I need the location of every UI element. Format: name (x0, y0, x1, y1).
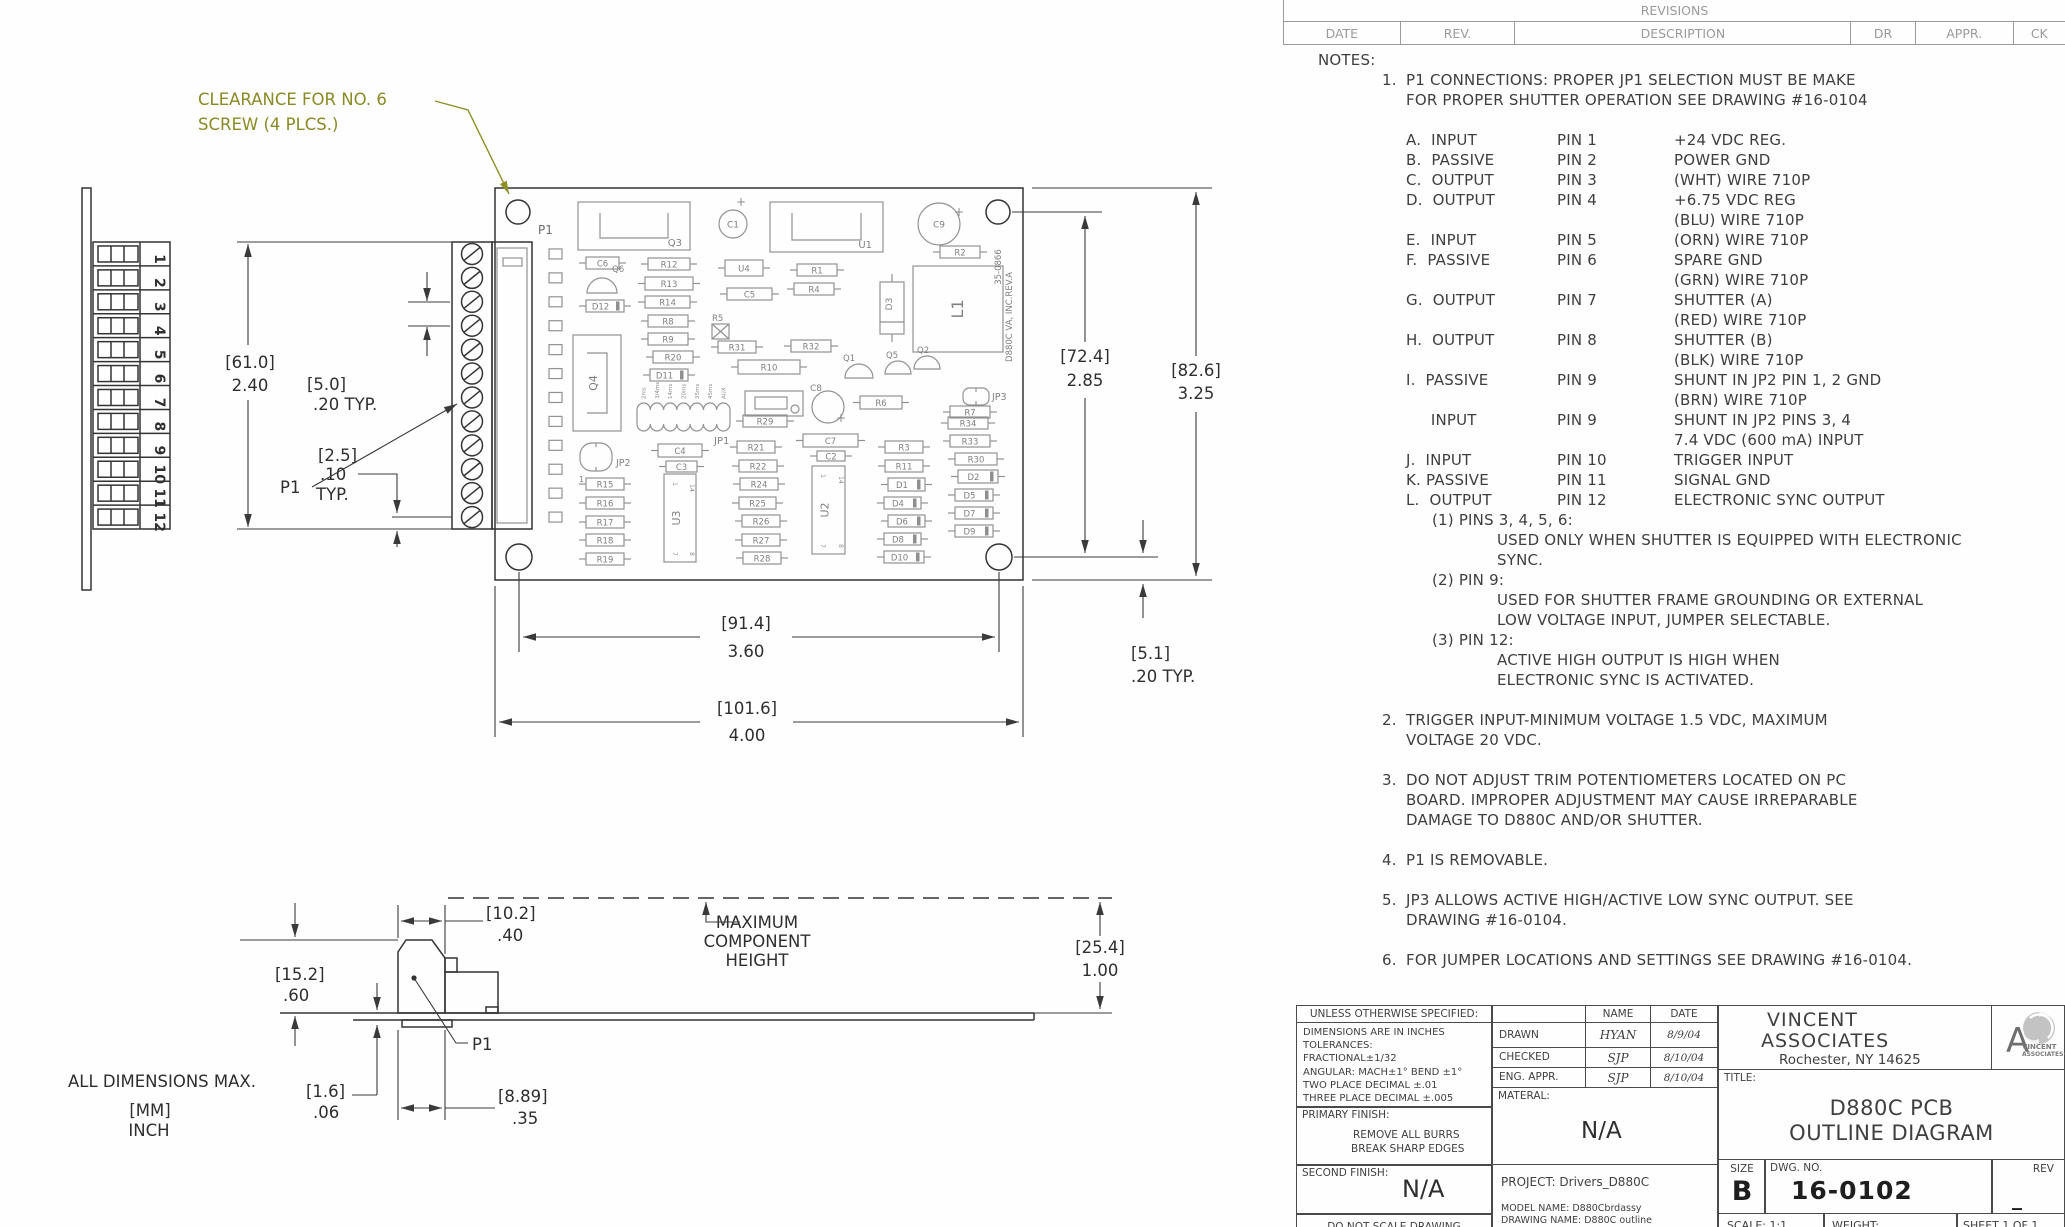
svg-text:Q6: Q6 (612, 265, 624, 275)
component-C7: C7 (803, 434, 858, 447)
svg-text:D4: D4 (892, 499, 904, 509)
terminal-number: 9 (151, 445, 167, 455)
material-cell: MATERAL: N/A (1492, 1087, 1718, 1165)
dim-61: [61.0] (225, 353, 275, 372)
terminal-cell (98, 389, 138, 405)
component-C1: C1+ (719, 195, 747, 238)
checked-date: 8/10/04 (1650, 1047, 1718, 1068)
mounting-hole (986, 544, 1012, 570)
pcb-top-view: Q3U1C1+C9+R2U4C5R1R4D3L1C6Q6D12R12R13R14… (452, 188, 1023, 580)
p1-pin-pad (549, 297, 562, 307)
svg-text:R6: R6 (875, 399, 886, 409)
p1-pin-pad (549, 440, 562, 450)
svg-text:R13: R13 (661, 280, 678, 290)
svg-text:1: 1 (819, 474, 826, 478)
dim-35: .35 (512, 1109, 538, 1128)
company-name-1: VINCENT (1767, 1009, 1858, 1031)
svg-text:Q2: Q2 (917, 346, 929, 356)
material-value: N/A (1581, 1118, 1622, 1144)
drawn-date: 8/9/04 (1650, 1022, 1718, 1048)
terminal-number: 7 (151, 398, 167, 408)
svg-text:C3: C3 (676, 463, 687, 473)
component-R22: R22 (739, 460, 777, 472)
title-cell: TITLE: D880C PCB OUTLINE DIAGRAM (1718, 1069, 2065, 1160)
component-R29: R29 (743, 415, 787, 427)
component-R14: R14 (645, 296, 690, 308)
dim-914: [91.4] (721, 614, 771, 633)
pin-row: (BLK) WIRE 710P (1406, 350, 2038, 370)
pin-row: G. OUTPUTPIN 7SHUTTER (A) (1406, 290, 2038, 310)
component-C2: C2 (817, 451, 845, 462)
svg-text:C6: C6 (597, 259, 608, 269)
clearance-callout: CLEARANCE FOR NO. 6 SCREW (4 PLCS.) (198, 90, 509, 194)
svg-text:L1: L1 (948, 299, 967, 318)
dim-60: .60 (283, 986, 309, 1005)
dim-06: .06 (313, 1103, 339, 1122)
terminal-cell (98, 485, 138, 501)
svg-text:8: 8 (688, 552, 695, 556)
component-R3: R3 (885, 441, 923, 453)
component-R25: R25 (739, 497, 776, 509)
sub-note-head: (3) PIN 12: (1432, 630, 2038, 650)
p1-label-side: P1 (472, 1035, 492, 1054)
do-not-scale-cell: DO NOT SCALE DRAWING (1296, 1213, 1492, 1227)
logo-text-1: VINCENT (2022, 1043, 2057, 1051)
pin-table: A. INPUTPIN 1+24 VDC REG.B. PASSIVEPIN 2… (1318, 130, 2038, 510)
pin-row: C. OUTPUTPIN 3(WHT) WIRE 710P (1406, 170, 2038, 190)
svg-text:7: 7 (819, 544, 826, 548)
svg-text:R15: R15 (597, 480, 614, 490)
p1-label-left: P1 (280, 478, 300, 497)
tolerance-line: THREE PLACE DECIMAL ±.005 (1303, 1092, 1491, 1105)
svg-text:R5: R5 (712, 314, 723, 324)
dim-102: [10.2] (486, 904, 536, 923)
svg-text:U4: U4 (738, 264, 750, 274)
component-R33: R33 (950, 435, 990, 447)
svg-text:+: + (836, 411, 846, 425)
sub-note-line: ACTIVE HIGH OUTPUT IS HIGH WHEN (1497, 650, 2038, 670)
pin-row: (BLU) WIRE 710P (1406, 210, 2038, 230)
drawing-title-2: OUTLINE DIAGRAM (1719, 1121, 2064, 1145)
svg-text:R22: R22 (750, 462, 767, 472)
pin-row: 7.4 VDC (600 mA) INPUT (1406, 430, 2038, 450)
mounting-hole (986, 200, 1010, 224)
pin-row: K. PASSIVEPIN 11SIGNAL GND (1406, 470, 2038, 490)
component-U1: U1 (770, 202, 883, 252)
jp1-tick-label: 20ms (682, 384, 688, 399)
p1-pin-pad (549, 321, 562, 331)
revisions-table: REVISIONS DATE REV. DESCRIPTION DR APPR.… (1283, 0, 2065, 45)
svg-text:8: 8 (837, 544, 844, 548)
note-item: 4.P1 IS REMOVABLE. (1318, 850, 2038, 870)
component-D7: D7 (955, 507, 993, 519)
dim-16: [1.6] (306, 1082, 345, 1101)
note-item: 6.FOR JUMPER LOCATIONS AND SETTINGS SEE … (1318, 950, 2038, 970)
sub-note-head: (1) PINS 3, 4, 5, 6: (1432, 510, 2038, 530)
svg-text:C8: C8 (810, 384, 822, 394)
all-dims-note: ALL DIMENSIONS MAX. (68, 1072, 256, 1091)
tolerance-line: TWO PLACE DECIMAL ±.01 (1303, 1079, 1491, 1092)
dim-325: 3.25 (1178, 384, 1215, 403)
svg-text:D12: D12 (592, 302, 609, 312)
terminal-cell (98, 413, 138, 429)
component-U4: U4 (725, 260, 763, 276)
component-D1: D1 (888, 478, 925, 491)
rev-col-ck: CK (2014, 22, 2065, 44)
dwg-no-cell: DWG. NO. 16-0102 (1764, 1159, 1993, 1214)
date-header: DATE (1650, 1005, 1718, 1023)
terminal-number: 12 (151, 512, 167, 531)
drawn-name: HYAN (1585, 1022, 1651, 1048)
notes-heading: NOTES: (1318, 50, 2038, 70)
svg-text:R28: R28 (754, 554, 771, 564)
svg-text:R29: R29 (757, 417, 774, 427)
component-D4: D4 (884, 497, 921, 509)
component-C8: C8+ (810, 384, 846, 425)
logo-text-2: ASSOCIATES® (2022, 1051, 2065, 1058)
note-item: 3.DO NOT ADJUST TRIM POTENTIOMETERS LOCA… (1318, 770, 2038, 830)
notes-section: NOTES: 1.P1 CONNECTIONS: PROPER JP1 SELE… (1318, 50, 2038, 970)
component-D11: D11 (650, 369, 688, 381)
terminal-cell (98, 294, 138, 310)
checked-label: CHECKED (1492, 1047, 1586, 1068)
svg-text:R17: R17 (597, 518, 614, 528)
svg-text:D2: D2 (968, 473, 980, 483)
component-D6: D6 (888, 515, 925, 527)
component-R30: R30 (955, 453, 997, 465)
pin-row: (RED) WIRE 710P (1406, 310, 2038, 330)
p1-pin-pad (549, 345, 562, 355)
jp1-tick-label: 14ms (668, 384, 674, 399)
svg-text:U1: U1 (858, 240, 872, 251)
company-name-2: ASSOCIATES (1761, 1030, 1889, 1052)
component-L1: L1 (913, 266, 1003, 352)
svg-text:1: 1 (671, 482, 678, 486)
terminal-cell (98, 366, 138, 382)
component-C3: C3 (666, 461, 697, 473)
note-item: 1.P1 CONNECTIONS: PROPER JP1 SELECTION M… (1318, 70, 2038, 110)
p1-pin-pad (549, 392, 562, 402)
board-part-number: 35-0866 (994, 249, 1004, 285)
svg-text:C1: C1 (727, 221, 739, 231)
svg-text:R4: R4 (808, 285, 819, 295)
p1-profile (398, 940, 445, 1013)
svg-text:C7: C7 (825, 437, 836, 447)
svg-text:+: + (954, 205, 964, 219)
dim-889: [8.89] (498, 1087, 548, 1106)
pin-row: D. OUTPUTPIN 4+6.75 VDC REG (1406, 190, 2038, 210)
component-U2: U211478 (812, 466, 845, 554)
rev-col-date: DATE (1284, 22, 1401, 44)
svg-text:JP3: JP3 (991, 392, 1007, 403)
component-D8: D8 (884, 533, 921, 545)
component-Q4: Q4 (573, 335, 621, 431)
component-R16: R16 (586, 497, 624, 509)
terminal-number: 3 (151, 302, 167, 312)
dim-254: [25.4] (1075, 938, 1125, 957)
svg-text:R14: R14 (659, 298, 676, 308)
sig-header-blank (1492, 1005, 1586, 1023)
pin-row: INPUTPIN 9SHUNT IN JP2 PINS 3, 4 (1406, 410, 2038, 430)
svg-text:JP2: JP2 (615, 458, 631, 469)
svg-text:R31: R31 (729, 343, 746, 353)
component-Q1: Q1 (843, 354, 873, 378)
dim-100: 1.00 (1082, 961, 1119, 980)
company-city: Rochester, NY 14625 (1779, 1052, 1921, 1068)
svg-text:R9: R9 (662, 335, 673, 345)
drawing-sheet: 123456789101112 Q3U1C1+C9+R2U4C5R1R4D3L1… (0, 0, 2065, 1227)
svg-text:R33: R33 (962, 437, 979, 447)
tolerance-line: FRACTIONAL±1/32 (1303, 1052, 1491, 1065)
svg-text:R21: R21 (748, 443, 765, 453)
sub-note-line: SYNC. (1497, 550, 2038, 570)
svg-text:C4: C4 (674, 447, 685, 457)
dim-20typ: .20 TYP. (313, 395, 377, 414)
tolerances-cell: DIMENSIONS ARE IN INCHESTOLERANCES:FRACT… (1296, 1022, 1492, 1108)
rev-col-dr: DR (1851, 22, 1915, 44)
units-mm: [MM] (129, 1101, 170, 1120)
dim-400: 4.00 (729, 726, 766, 745)
svg-text:D8: D8 (892, 535, 904, 545)
sub-note-line: USED FOR SHUTTER FRAME GROUNDING OR EXTE… (1497, 590, 2038, 610)
component-R2: R2 (940, 246, 980, 258)
svg-text:C5: C5 (744, 290, 755, 300)
dwg-no-value: 16-0102 (1791, 1176, 1913, 1205)
svg-text:D11: D11 (656, 371, 673, 381)
board-rev-text: D880C VA, INC.REV.A (1005, 272, 1015, 362)
size-value: B (1719, 1176, 1765, 1207)
terminal-number: 5 (151, 350, 167, 360)
dim-360: 3.60 (728, 642, 765, 661)
component-R28: R28 (743, 552, 781, 564)
jp1-tick-label: AUX (721, 387, 727, 399)
eng-appr-date: 8/10/04 (1650, 1067, 1718, 1088)
company-cell: VINCENT ASSOCIATES Rochester, NY 14625 A… (1718, 1005, 2065, 1070)
sub-note-line: LOW VOLTAGE INPUT, JUMPER SELECTABLE. (1497, 610, 2038, 630)
units-inch: INCH (128, 1121, 169, 1140)
pin-row: A. INPUTPIN 1+24 VDC REG. (1406, 130, 2038, 150)
terminal-cell (98, 342, 138, 358)
checked-name: SJP (1585, 1047, 1651, 1068)
max-height-2: COMPONENT (704, 932, 812, 951)
jp1-tick-label: 2ms (642, 387, 648, 399)
component-R24: R24 (740, 478, 778, 490)
dim-50: [5.0] (307, 375, 346, 394)
project-name: PROJECT: Drivers_D880C (1501, 1175, 1649, 1189)
mounting-hole (506, 200, 530, 224)
component-R18: R18 (586, 534, 624, 546)
pin-row: F. PASSIVEPIN 6SPARE GND (1406, 250, 2038, 270)
dim-285: 2.85 (1067, 371, 1104, 390)
p1-pin-pad (549, 273, 562, 283)
tolerance-line: ANGULAR: MACH±1° BEND ±1° (1303, 1066, 1491, 1079)
dim-724: [72.4] (1060, 347, 1110, 366)
svg-text:D7: D7 (964, 509, 976, 519)
svg-text:C2: C2 (825, 452, 836, 462)
dim-40: .40 (497, 926, 523, 945)
sub-note-head: (2) PIN 9: (1432, 570, 2038, 590)
svg-text:C9: C9 (933, 221, 945, 231)
p1-header (492, 242, 532, 529)
sub-note-line: ELECTRONIC SYNC IS ACTIVATED. (1497, 670, 2038, 690)
svg-text:D5: D5 (964, 491, 976, 501)
svg-text:R12: R12 (661, 260, 678, 270)
mounting-hole (506, 544, 532, 570)
svg-text:R27: R27 (753, 536, 770, 546)
svg-text:R10: R10 (761, 363, 778, 373)
p1-pin-pad (549, 249, 562, 259)
svg-text:+: + (736, 195, 746, 209)
p1-pin-pad (549, 416, 562, 426)
sub-note-line: USED ONLY WHEN SHUTTER IS EQUIPPED WITH … (1497, 530, 2038, 550)
note-item: 5.JP3 ALLOWS ACTIVE HIGH/ACTIVE LOW SYNC… (1318, 890, 2038, 930)
terminal-number: 8 (151, 422, 167, 432)
component-R9: R9 (648, 333, 688, 345)
dim-20typb: .20 TYP. (1131, 667, 1195, 686)
rev-col-description: DESCRIPTION (1515, 22, 1851, 44)
unless-otherwise-cell: UNLESS OTHERWISE SPECIFIED: (1296, 1005, 1492, 1023)
component-D12: D12 (586, 300, 624, 312)
pin-row: I. PASSIVEPIN 9SHUNT IN JP2 PIN 1, 2 GND (1406, 370, 2038, 390)
svg-text:R8: R8 (662, 317, 673, 327)
model-name: MODEL NAME: D880Cbrdassy (1501, 1203, 1642, 1214)
component-U3: U311478 (664, 474, 696, 562)
svg-text:D1: D1 (896, 481, 908, 491)
pin-row: B. PASSIVEPIN 2POWER GND (1406, 150, 2038, 170)
component-D9: D9 (955, 525, 993, 537)
svg-text:JP1: JP1 (713, 436, 729, 447)
component-R12: R12 (648, 258, 690, 270)
pin-row: E. INPUTPIN 5(ORN) WIRE 710P (1406, 230, 2038, 250)
svg-text:Q1: Q1 (843, 354, 855, 364)
dim-1016: [101.6] (717, 699, 777, 718)
component-C9: C9+ (918, 203, 964, 245)
p1-pin-pad (549, 464, 562, 474)
second-finish-value: N/A (1402, 1175, 1444, 1203)
component-R1: R1 (797, 264, 837, 276)
svg-text:Q3: Q3 (668, 238, 682, 249)
rev-cell: REV _ (1991, 1159, 2065, 1214)
svg-text:U3: U3 (670, 510, 683, 525)
connector-side-view: 123456789101112 (82, 188, 170, 590)
component-R20: R20 (653, 351, 693, 363)
svg-text:R18: R18 (597, 536, 614, 546)
svg-text:Q5: Q5 (886, 351, 898, 361)
component-D5: D5 (955, 489, 993, 501)
svg-text:Q4: Q4 (587, 375, 600, 391)
svg-text:D10: D10 (891, 553, 908, 563)
component-R6: R6 (860, 396, 902, 409)
component-R31: R31 (718, 341, 756, 353)
project-cell: PROJECT: Drivers_D880C MODEL NAME: D880C… (1492, 1164, 1718, 1227)
drawing-name: DRAWING NAME: D880C outline (1501, 1215, 1652, 1226)
svg-text:R26: R26 (753, 517, 770, 527)
component-R11: R11 (885, 460, 923, 472)
component-R5: R5 (712, 314, 729, 339)
terminal-cell (98, 437, 138, 453)
svg-text:R25: R25 (749, 499, 766, 509)
component-R8: R8 (648, 315, 688, 327)
component-Q3: Q3 (578, 202, 690, 250)
svg-text:R20: R20 (665, 353, 682, 363)
component-C4: C4 (658, 444, 702, 457)
terminal-strip (452, 242, 492, 529)
pin-row: J. INPUTPIN 10TRIGGER INPUT (1406, 450, 2038, 470)
dim-826: [82.6] (1171, 361, 1221, 380)
terminal-cell (98, 270, 138, 286)
scale-cell: SCALE: 1:1 (1718, 1213, 1825, 1227)
component-C5: C5 (727, 288, 772, 300)
drawing-title-1: D880C PCB (1719, 1096, 2064, 1120)
dim-152: [15.2] (275, 965, 325, 984)
svg-text:U2: U2 (819, 502, 832, 517)
dim-51b: [5.1] (1131, 644, 1170, 663)
dimensions-main: [61.0] 2.40 [5.0] .20 TYP. [2.5] .10 TYP… (225, 188, 1221, 745)
component-Q2: Q2 (914, 346, 940, 369)
eng-appr-name: SJP (1585, 1067, 1651, 1088)
component-JP3: JP3 (963, 388, 1007, 405)
component-D10: D10 (884, 551, 924, 563)
component-R19: R19 (586, 553, 624, 565)
rev-value: _ (2012, 1186, 2022, 1210)
component-D2: D2 (958, 470, 998, 483)
p1-pin-pad (549, 512, 562, 522)
terminal-cell (98, 509, 138, 525)
pin-row: H. OUTPUTPIN 8SHUTTER (B) (1406, 330, 2038, 350)
p1-label-top: P1 (538, 223, 553, 237)
svg-text:R3: R3 (898, 443, 909, 453)
component-R32: R32 (791, 340, 831, 352)
p1-pin-pad (549, 488, 562, 498)
terminal-number: 6 (151, 374, 167, 384)
svg-text:R11: R11 (896, 462, 913, 472)
component-R13: R13 (645, 277, 693, 290)
component-R27: R27 (742, 534, 780, 546)
jp1-tick-label: 3/4ms (655, 382, 661, 399)
component-R21: R21 (737, 441, 775, 453)
svg-text:14: 14 (837, 476, 844, 484)
svg-text:7: 7 (671, 552, 678, 556)
svg-text:R16: R16 (597, 499, 614, 509)
component (745, 391, 803, 416)
terminal-cell (98, 461, 138, 477)
terminal-number: 2 (151, 278, 167, 288)
svg-text:R24: R24 (751, 480, 768, 490)
terminal-cell (98, 246, 138, 262)
dim-10-typ: TYP. (315, 485, 349, 504)
terminal-cell (98, 318, 138, 334)
company-logo: A VINCENT ASSOCIATES® (1991, 1005, 2065, 1070)
rev-col-rev: REV. (1401, 22, 1516, 44)
drawn-label: DRAWN (1492, 1022, 1586, 1048)
callout-line2: SCREW (4 PLCS.) (198, 115, 338, 134)
tolerance-line: TOLERANCES: (1303, 1039, 1491, 1052)
jp1-tick-label: 35ms (695, 384, 701, 399)
terminal-number: 4 (151, 326, 167, 336)
component-R26: R26 (742, 515, 780, 527)
terminal-number: 1 (151, 254, 167, 264)
svg-text:1: 1 (579, 475, 584, 484)
rev-col-appr: APPR. (1916, 22, 2014, 44)
jp1-tick-label: 45ms (708, 384, 714, 399)
svg-text:D3: D3 (885, 298, 895, 311)
svg-text:R34: R34 (960, 419, 977, 429)
weight-cell: WEIGHT: (1823, 1213, 1958, 1227)
component-Q5: Q5 (885, 351, 911, 374)
callout-line1: CLEARANCE FOR NO. 6 (198, 90, 387, 109)
svg-text:14: 14 (688, 484, 695, 492)
component-R4: R4 (794, 283, 834, 295)
